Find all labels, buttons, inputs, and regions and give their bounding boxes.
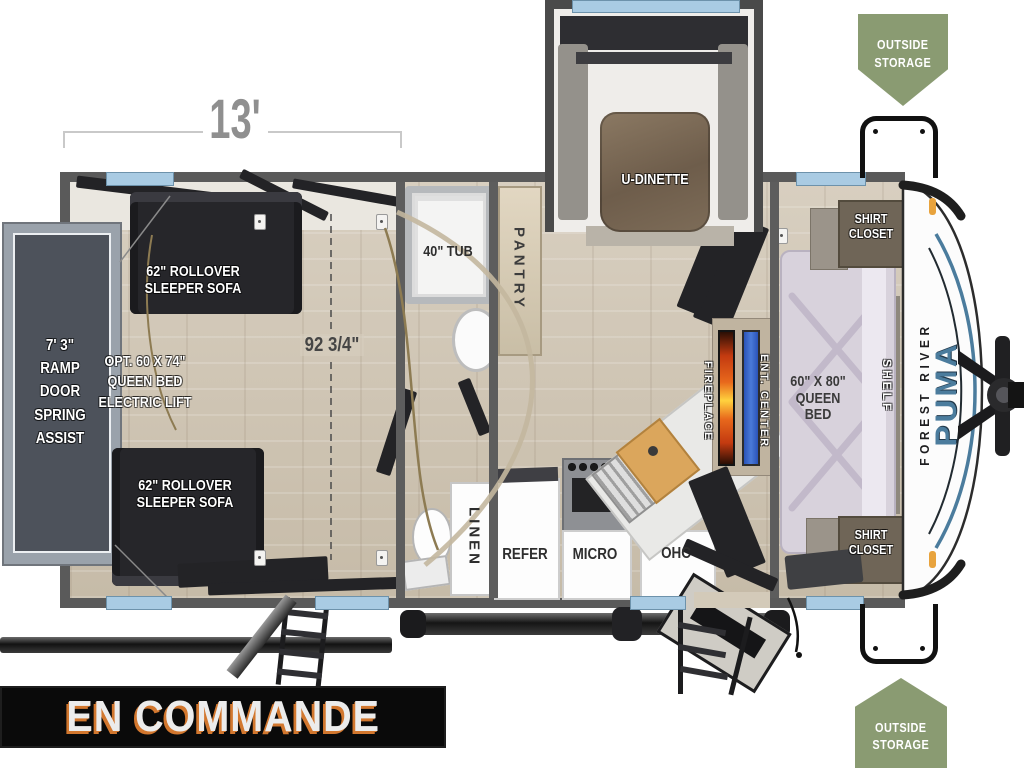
shirt-closet-top-label: SHIRTCLOSET [843,212,898,241]
dim-tick [63,131,65,148]
dinette-bench-back [576,52,732,64]
window [806,596,864,610]
garage-length-label: 13' [201,86,269,151]
window [796,172,866,186]
faucet [648,446,658,456]
window [106,596,172,610]
ohc-label: OHC [646,545,706,563]
opt-bed-label: OPT. 60 X 74"QUEEN BEDELECTRIC LIFT [95,352,194,413]
pantry-label: PANTRY [503,192,535,346]
floor-marker [254,214,266,230]
marker-light [929,551,936,568]
toilet-tank [401,555,451,591]
ent-center-label: ENT. CENTER [756,328,772,474]
fireplace-label: FIREPLACE [700,334,716,468]
dim-line [63,131,203,133]
dinette-label: U-DINETTE [605,172,704,189]
window [106,172,174,186]
dim-line [268,131,402,133]
storage-door-outline-top [860,116,938,178]
floor-marker [376,550,388,566]
floor-marker [254,550,266,566]
refer-top [494,467,558,483]
awning-end-cap [400,610,426,638]
refer-cabinet [494,478,560,600]
garage-width-label: 92 3/4" [300,334,364,356]
marker-light [929,198,936,215]
storage-door-outline-bottom [860,604,938,664]
fireplace-strip [718,330,735,466]
sofa-top-label: 62" ROLLOVERSLEEPER SOFA [130,264,256,298]
window [630,596,686,610]
window [572,0,740,13]
sofa-bottom-label: 62" ROLLOVERSLEEPER SOFA [122,478,248,512]
status-banner: EN COMMANDE [0,686,446,748]
refer-label: REFER [499,546,551,564]
wall-partition [396,182,405,598]
dim-tick [400,131,402,148]
logo-model-text: PUMA [932,237,962,552]
microwave-cabinet [562,530,632,600]
badge-label: OUTSIDESTORAGE [875,36,932,71]
outside-storage-badge-bottom: OUTSIDESTORAGE [855,678,947,768]
awning-end-cap [612,607,642,641]
linen-label: LINEN [456,488,492,586]
floorplan-canvas: 13' 7' 3"RAMP DOOR SPRINGASSIST 62" ROLL… [0,0,1024,768]
ramp-door-label: 7' 3"RAMP DOOR SPRINGASSIST [20,334,101,450]
entry-door-opening [694,592,770,608]
badge-label: OUTSIDESTORAGE [873,719,930,754]
brand-logo: FOREST RIVER PUMA [917,244,969,544]
micro-label: MICRO [567,546,622,564]
queen-bed-label: 60" X 80"QUEEN BED [784,374,851,424]
window [315,596,389,610]
dinette-bench [718,44,748,220]
tub-label: 40" TUB [413,244,484,261]
outside-storage-badge-top: OUTSIDESTORAGE [858,14,948,106]
banner-text: EN COMMANDE [66,692,379,742]
dinette-bench [558,44,588,220]
shirt-closet-bottom-label: SHIRTCLOSET [843,528,898,557]
floor-marker [376,214,388,230]
shelf-label: SHELF [878,338,896,434]
